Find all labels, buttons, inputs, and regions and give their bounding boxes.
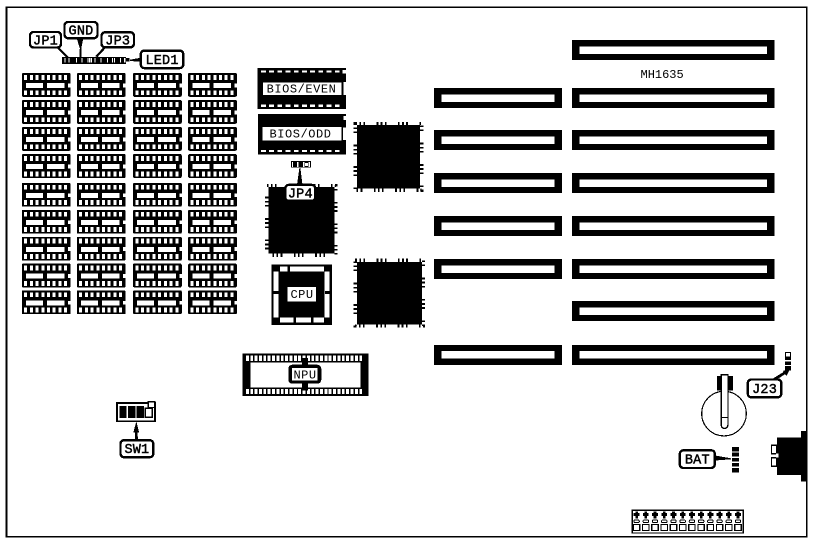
svg-text:JP4: JP4 xyxy=(288,187,313,202)
svg-text:GND: GND xyxy=(69,25,94,40)
svg-text:LED1: LED1 xyxy=(145,54,178,69)
svg-text:BAT: BAT xyxy=(685,454,710,469)
svg-text:SW1: SW1 xyxy=(124,443,149,458)
svg-text:BIOS/ODD: BIOS/ODD xyxy=(269,127,331,141)
svg-text:MH1635: MH1635 xyxy=(641,68,684,82)
svg-text:JP3: JP3 xyxy=(105,34,130,49)
svg-text:BIOS/EVEN: BIOS/EVEN xyxy=(267,83,337,97)
svg-text:CPU: CPU xyxy=(290,288,313,302)
svg-text:J23: J23 xyxy=(752,383,777,398)
svg-text:JP1: JP1 xyxy=(33,34,58,49)
svg-text:NPU: NPU xyxy=(293,368,316,382)
